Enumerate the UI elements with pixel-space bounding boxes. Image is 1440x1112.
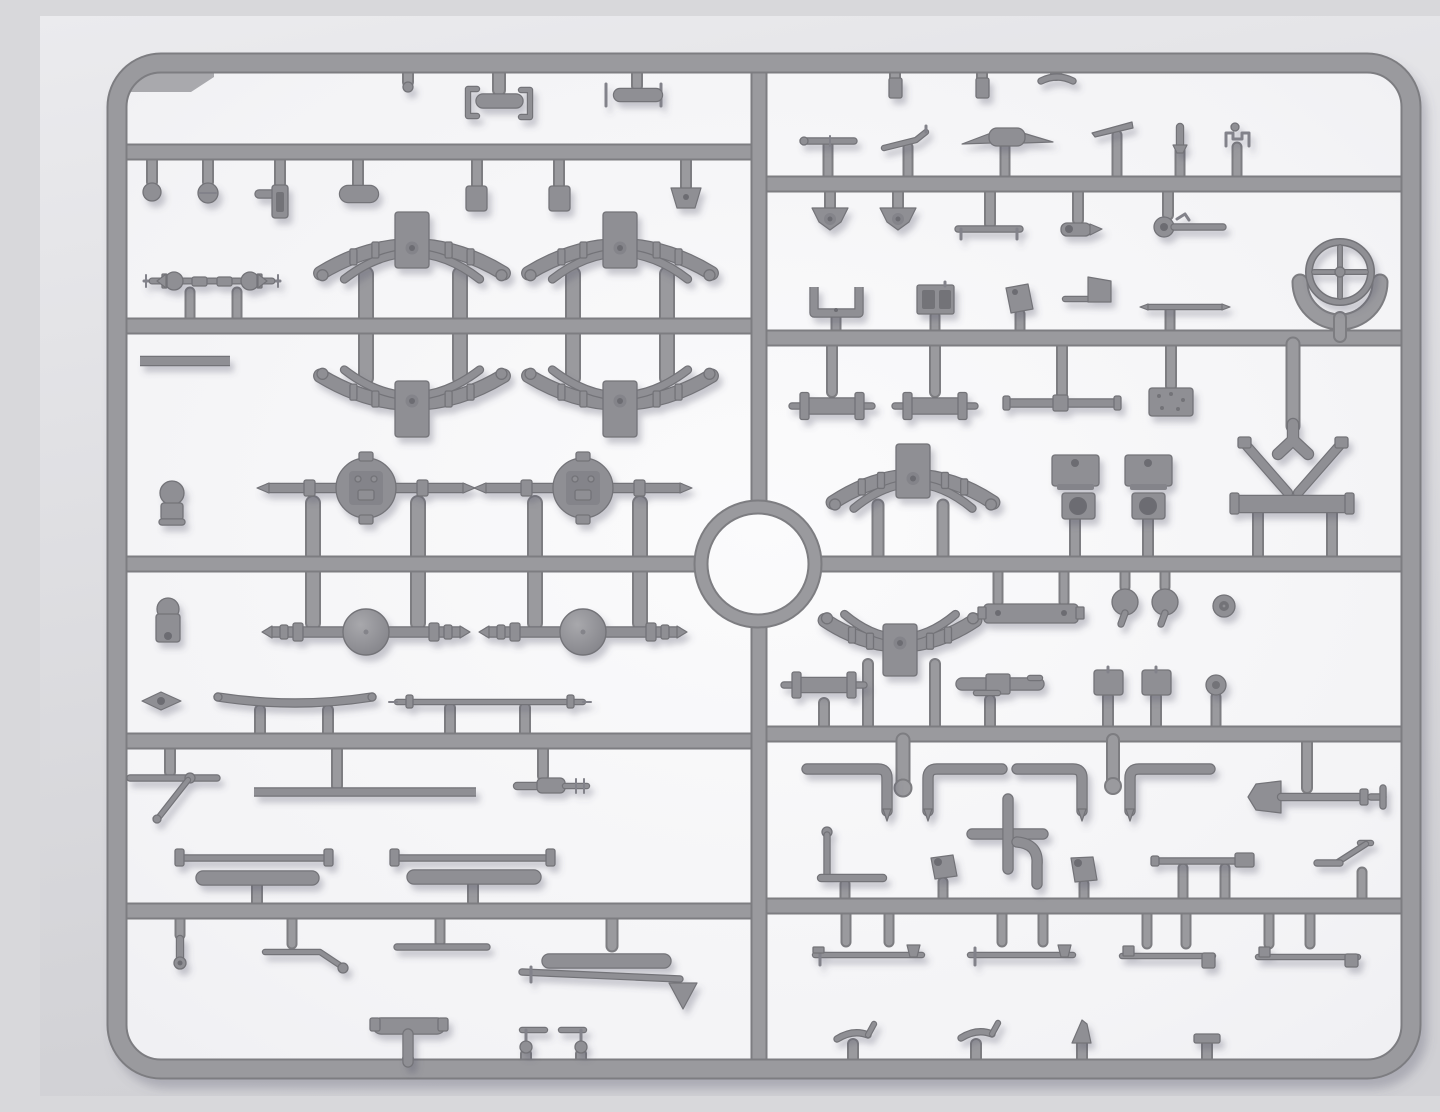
seat-back-b-lip — [1130, 484, 1167, 490]
tie-rod-ball — [153, 815, 161, 823]
axle-differential-b-collar — [634, 480, 645, 496]
leaf-spring-front-right-seat — [603, 212, 637, 268]
piston-body — [537, 778, 565, 793]
segmented-leaf-spring-down-clamp — [945, 627, 952, 643]
shovel-collar — [1360, 789, 1368, 805]
winch-drum-c-flange — [792, 672, 801, 698]
leaf-spring-front-left-clamp — [350, 249, 357, 265]
axle-differential-b-cap — [575, 490, 591, 500]
bullet-eye — [1065, 225, 1073, 233]
rear-axle-a-collar — [444, 625, 452, 639]
front-axle-hub — [241, 272, 259, 290]
front-axle-sleeve — [192, 277, 207, 286]
step-bar-a-end-l — [175, 849, 184, 866]
leaf-spring-front-left-clamp — [445, 242, 452, 258]
leaf-spring-rear-left-clamp — [372, 391, 379, 407]
segmented-leaf-spring-down-clamp — [867, 633, 874, 649]
leaf-spring-front-left-clamp — [372, 242, 379, 258]
plate-hole — [683, 194, 689, 200]
collar-rod-cap-l — [1003, 396, 1010, 410]
link-rod-a-fit — [907, 945, 920, 957]
sprue-photo: Top-down photo of a gray injection-molde… — [40, 16, 1440, 1096]
link-rod-b-fit — [1058, 945, 1071, 957]
plain-bit — [1194, 1034, 1220, 1043]
t-part-pin-r — [438, 1018, 448, 1031]
segmented-leaf-spring-up-clamp — [961, 479, 968, 495]
spring-hanger-a-hole — [828, 217, 833, 222]
leaf-spring-front-left-curl — [317, 270, 328, 281]
hook-pin-b-ball — [575, 1041, 587, 1053]
crown-pin — [1231, 123, 1239, 131]
rear-axle-b-collar — [510, 623, 520, 641]
link-rod-c-fit — [1202, 953, 1215, 968]
flat-key-a — [889, 78, 902, 98]
segmented-leaf-spring-down-curl — [968, 613, 979, 624]
segmented-leaf-spring-up-curl — [986, 499, 997, 510]
grommet-a-pin — [1222, 604, 1226, 608]
blade-hub — [989, 128, 1025, 146]
front-axle-sleeve — [217, 277, 232, 286]
axle-differential-b-bolt — [588, 476, 594, 482]
hole-plate-b — [1061, 610, 1067, 616]
segmented-leaf-spring-up-curl — [830, 499, 841, 510]
pin-head — [403, 82, 413, 92]
small-box-a — [1094, 670, 1123, 695]
v-strut-anchor-r — [1335, 437, 1348, 448]
clamp-body — [161, 503, 183, 520]
step-bar-a-end-r — [324, 849, 333, 866]
rear-axle-b-sphere-pip — [581, 630, 586, 635]
winch-drum-a-flange — [855, 393, 864, 420]
clip-box-b — [549, 186, 570, 211]
hole-plate-tab-l — [978, 607, 986, 619]
segmented-leaf-spring-up-clamp — [942, 472, 949, 488]
u-bracket-dot — [834, 308, 838, 312]
t-part-pin-l — [370, 1018, 380, 1031]
seat-back-b-hole — [1144, 459, 1152, 467]
axle-collar-a — [406, 695, 413, 708]
rod-box-end — [1235, 853, 1254, 867]
segmented-leaf-spring-down-curl — [822, 613, 833, 624]
rear-axle-b-collar — [497, 625, 505, 639]
leaf-spring-front-right-clamp — [580, 242, 587, 258]
leaf-spring-rear-left-eye-hole — [409, 398, 415, 404]
leaf-spring-front-right-eye-hole — [617, 245, 623, 251]
axle-differential-a-collar — [304, 480, 315, 496]
link-rod-d-fit — [1345, 954, 1358, 967]
rear-axle-a-sphere-pip — [364, 630, 369, 635]
leaf-spring-rear-left-clamp — [467, 384, 474, 400]
ball-gate-end — [1105, 778, 1121, 794]
leaf-spring-rear-right-seat — [603, 381, 637, 437]
segmented-leaf-spring-down-clamp — [849, 627, 856, 643]
flat-spring-eye-r — [368, 693, 376, 701]
box-dot-2 — [1169, 392, 1173, 396]
front-axle-hub — [165, 272, 183, 290]
step-bar-b-end-r — [546, 849, 555, 866]
bar-cap-r — [1345, 493, 1354, 514]
leaf-spring-rear-right-clamp — [675, 384, 682, 400]
leaf-spring-rear-right-curl — [704, 368, 715, 379]
axle-differential-a-collar — [417, 480, 428, 496]
segmented-leaf-spring-down-seat — [883, 624, 917, 676]
rear-axle-b-collar — [661, 625, 669, 639]
wedge-plate-hole — [1012, 289, 1018, 295]
ball-gate-end — [895, 780, 912, 797]
link-rod-c-cube — [1123, 946, 1134, 956]
flat-spring-eye-l — [214, 693, 222, 701]
segmented-leaf-spring-up-clamp — [858, 479, 865, 495]
leaf-spring-front-left-eye-hole — [409, 245, 415, 251]
rear-axle-a-collar — [293, 623, 303, 641]
steering-wheel-hub — [1335, 267, 1345, 277]
leaf-spring-front-left-seat — [395, 212, 429, 268]
window-box-b — [939, 290, 951, 309]
leaf-spring-rear-right-clamp — [653, 391, 660, 407]
rod-box-cap — [1151, 856, 1159, 866]
leaf-spring-rear-left-clamp — [350, 384, 357, 400]
leaf-spring-front-right-curl — [525, 270, 536, 281]
winch-drum-b-flange — [903, 393, 912, 420]
small-box-b — [1142, 670, 1171, 695]
axle-differential-a-bolt — [371, 476, 377, 482]
box-dot-5 — [1176, 407, 1180, 411]
segmented-leaf-spring-down-eye-hole — [897, 640, 903, 646]
v-strut-anchor-l — [1238, 437, 1251, 448]
box-dot-4 — [1160, 406, 1164, 410]
rear-axle-a-collar — [280, 625, 288, 639]
hook-pin-a-ball — [520, 1041, 532, 1053]
link-rod-d-cube — [1259, 947, 1270, 957]
wedge-plate — [1006, 284, 1033, 313]
pistol-window — [276, 192, 284, 212]
bent-rod-ball — [338, 963, 348, 973]
flag-body — [1088, 277, 1111, 302]
axle-differential-a-nub — [359, 515, 373, 524]
leaf-spring-rear-left-curl — [317, 368, 328, 379]
axle-differential-a-nub — [359, 452, 373, 461]
leaf-spring-rear-right-clamp — [580, 391, 587, 407]
winch-drum-b-flange — [958, 393, 967, 420]
leaf-spring-front-left-clamp — [467, 249, 474, 265]
spring-hanger-b-hole — [896, 217, 901, 222]
box-dot-1 — [1157, 394, 1161, 398]
seat-base-a-hole — [1069, 497, 1087, 515]
gusset-a — [931, 855, 957, 879]
grommet-b-mid — [1212, 681, 1220, 689]
segmented-leaf-spring-up-clamp — [878, 472, 885, 488]
diamond-hole — [157, 697, 165, 705]
rivet-disc — [143, 183, 161, 201]
leaf-spring-rear-left-clamp — [445, 391, 452, 407]
axle-differential-a-bolt — [355, 476, 361, 482]
hole-plate-a — [995, 610, 1001, 616]
link-rod-a-cap — [813, 947, 824, 953]
bar-cap-l — [1230, 493, 1239, 514]
hinge-hole — [164, 632, 172, 640]
seat-back-a-hole — [1071, 459, 1079, 467]
leaf-spring-front-right-curl — [704, 270, 715, 281]
rear-axle-a-collar — [429, 623, 439, 641]
axle-differential-a-cap — [358, 490, 374, 500]
sprue-scene-svg — [40, 16, 1440, 1096]
segmented-leaf-spring-up-seat — [896, 444, 930, 498]
axle-differential-b-bolt — [572, 476, 578, 482]
collar-rod-collar — [1053, 395, 1068, 411]
capped-rod-end — [800, 137, 808, 145]
winch-drum-a-flange — [800, 393, 809, 420]
rear-axle-b-collar — [646, 623, 656, 641]
hole-plate-tab-r — [1076, 607, 1084, 619]
gusset-b-hole — [1074, 859, 1082, 867]
box-dot-3 — [1181, 398, 1185, 402]
leaf-spring-rear-right-curl — [525, 368, 536, 379]
winch-drum-c-flange — [847, 672, 856, 698]
step-bar-b-end-l — [390, 849, 399, 866]
axle-differential-b-nub — [576, 515, 590, 524]
segmented-leaf-spring-up-eye-hole — [910, 476, 916, 482]
flat-key-b — [976, 78, 989, 98]
leaf-spring-front-left-curl — [496, 270, 507, 281]
clip-box-a — [466, 186, 487, 211]
leaf-spring-rear-right-clamp — [558, 384, 565, 400]
eye-link-hole — [178, 961, 183, 966]
clamp-head — [160, 481, 184, 505]
hub-disc-hole — [1160, 223, 1168, 231]
axle-collar-b — [567, 695, 574, 708]
window-box-a — [922, 290, 935, 309]
sprue-structure — [117, 63, 1411, 1069]
seat-back-a-lip — [1057, 484, 1094, 490]
leaf-spring-rear-left-seat — [395, 381, 429, 437]
leaf-spring-rear-left-curl — [496, 368, 507, 379]
leaf-spring-rear-right-eye-hole — [617, 398, 623, 404]
collar-rod-cap-r — [1114, 396, 1121, 410]
leaf-spring-front-right-clamp — [675, 249, 682, 265]
axle-differential-b-collar — [521, 480, 532, 496]
gusset-a-hole — [934, 858, 942, 866]
axle-differential-b-nub — [576, 452, 590, 461]
leaf-spring-front-right-clamp — [558, 249, 565, 265]
leaf-spring-front-right-clamp — [653, 242, 660, 258]
seat-base-b-hole — [1139, 497, 1157, 515]
segmented-leaf-spring-down-clamp — [927, 633, 934, 649]
